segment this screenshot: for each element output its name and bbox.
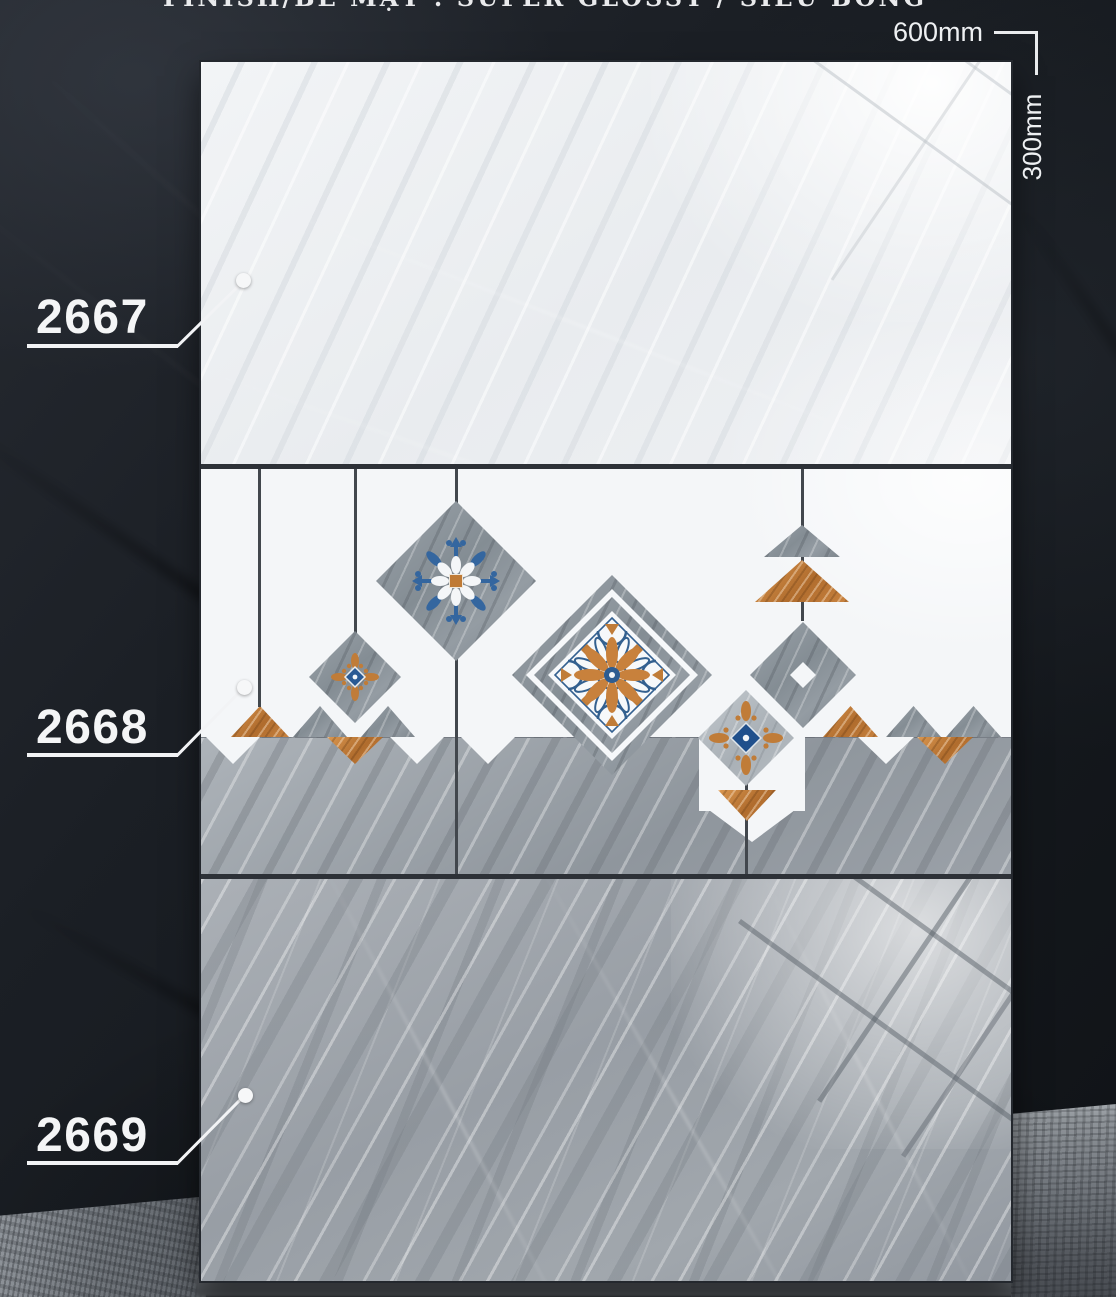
gloss-reflection <box>671 879 1011 1149</box>
width-dimension-label: 600mm <box>855 17 983 48</box>
fleur-motif <box>327 649 383 705</box>
floor-shadow-strip <box>196 1279 1016 1297</box>
tile-code: 2667 <box>36 290 149 345</box>
tile-sample-2667 <box>201 62 1011 464</box>
tile-sample-2668 <box>201 469 1011 874</box>
gloss-reflection <box>711 469 1011 669</box>
tile-catalog-page: FINISH/BỀ MẶT : SUPER GLOSSY / SIÊU BÓNG… <box>0 0 1116 1297</box>
reflection-line <box>901 906 1011 1158</box>
dimension-bracket-horizontal <box>994 31 1038 34</box>
pendant-triangle-gray <box>764 525 840 557</box>
pendant-triangle-copper <box>755 560 849 602</box>
floor-surface-right <box>1011 1100 1116 1297</box>
tooth-copper <box>823 706 878 737</box>
reflection-line <box>838 879 1011 1103</box>
background-fold <box>1013 200 1116 615</box>
hanging-line <box>258 469 261 707</box>
hanging-line <box>455 649 458 874</box>
gloss-reflection <box>711 284 1011 464</box>
mandala-motif <box>548 611 676 739</box>
label-underline <box>27 753 178 757</box>
diamond-hole-center <box>790 662 816 688</box>
tooth-gray <box>361 706 415 737</box>
tooth-gray <box>293 706 347 737</box>
leader-dot <box>238 1088 253 1103</box>
gloss-reflection <box>651 62 1011 322</box>
diamond-snowflake <box>376 501 536 661</box>
snowflake-motif <box>410 535 502 627</box>
tooth-copper <box>231 706 289 737</box>
tile-sample-2669 <box>201 879 1011 1281</box>
hanging-line <box>354 469 357 637</box>
marble-vein <box>260 202 933 462</box>
tile-code: 2668 <box>36 700 149 755</box>
tooth-gray <box>946 706 1001 737</box>
marble-vein <box>201 362 767 464</box>
label-underline <box>27 344 178 348</box>
reflection-line <box>831 62 1001 281</box>
tooth-gray <box>886 706 941 737</box>
leader-dot <box>237 680 252 695</box>
height-dimension-label: 300mm <box>1017 84 1047 190</box>
label-underline <box>27 1161 178 1165</box>
dimension-bracket-vertical <box>1035 31 1038 75</box>
finish-note: FINISH/BỀ MẶT : SUPER GLOSSY / SIÊU BÓNG <box>0 0 1090 12</box>
tile-panel <box>201 62 1011 1281</box>
marble-vein <box>319 879 584 1281</box>
tile-code: 2669 <box>36 1108 149 1163</box>
leader-dot <box>236 273 251 288</box>
